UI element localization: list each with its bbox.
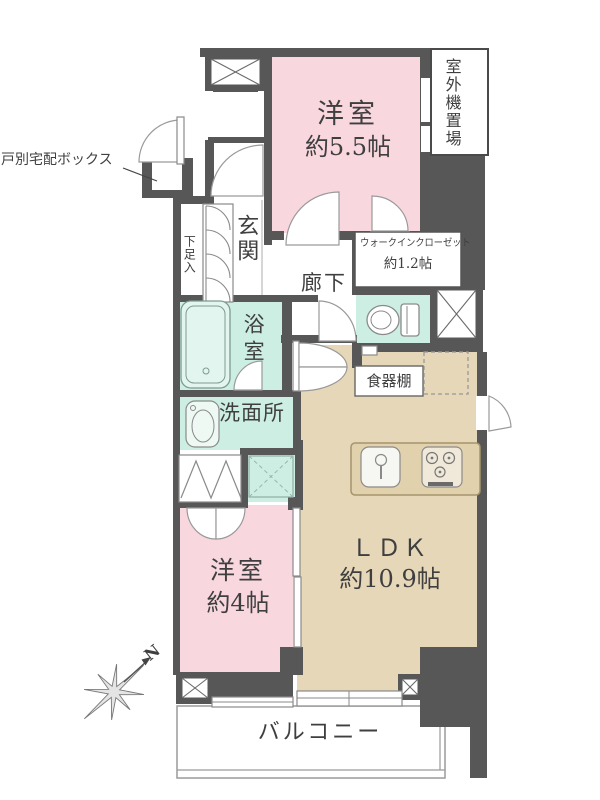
front-door-icon <box>139 120 181 162</box>
entrance-label: 玄関 <box>233 214 257 264</box>
window-slit <box>421 78 430 122</box>
pillar-icon <box>176 672 214 704</box>
delivery-box-label: 戸別宅配ボックス <box>1 153 113 168</box>
sliding-door-icon <box>293 508 301 647</box>
service-door-icon <box>489 396 511 431</box>
floorplan: 戸別宅配ボックス 洋室 約5.5帖 室外機置場 ウォークインクローゼット 約1.… <box>0 0 600 800</box>
washroom-label: 洗面所 <box>219 402 285 425</box>
wic-name: ウォークインクローゼット <box>360 238 456 249</box>
toilet-door-icon <box>319 301 356 341</box>
toilet-counter-icon <box>362 346 377 355</box>
balcony-label: バルコニー <box>235 721 405 745</box>
bathroom-label: 浴室 <box>241 313 264 367</box>
shoe-cabinet-icon <box>203 204 233 302</box>
cupboard-label: 食器棚 <box>355 373 423 390</box>
bedroom-main-size: 約5.5帖 <box>292 134 404 160</box>
hall-door-icon <box>211 145 263 196</box>
kitchen-sink-icon <box>361 447 400 487</box>
bedroom-second-size: 約4帖 <box>182 590 294 616</box>
compass-icon <box>84 657 151 720</box>
wic-size: 約1.2帖 <box>356 257 460 272</box>
folding-closet-icon <box>179 455 241 502</box>
outdoor-unit-space-label: 室外機置場 <box>443 58 461 148</box>
window-icon <box>297 691 402 706</box>
pipe-shaft-icon <box>205 53 266 92</box>
bathtub-icon <box>181 301 230 388</box>
kitchen-counter-icon <box>351 443 480 495</box>
pipe-shaft-icon <box>430 282 483 346</box>
shoe-cabinet-label: 下足入 <box>182 235 195 274</box>
window-icon <box>212 697 293 707</box>
hallway-label: 廊下 <box>301 272 347 295</box>
ldk-area <box>297 345 477 692</box>
window-slit <box>421 126 430 152</box>
ldk-name: ＬＤＫ <box>330 535 450 561</box>
bedroom-main-name: 洋室 <box>292 100 404 130</box>
washbasin-icon <box>186 401 219 447</box>
bedroom-second-name: 洋室 <box>182 557 294 585</box>
ldk-size: 約10.9帖 <box>330 566 450 592</box>
toilet-icon <box>367 304 419 336</box>
stove-icon <box>422 447 462 487</box>
refrigerator-space-icon <box>424 352 468 394</box>
